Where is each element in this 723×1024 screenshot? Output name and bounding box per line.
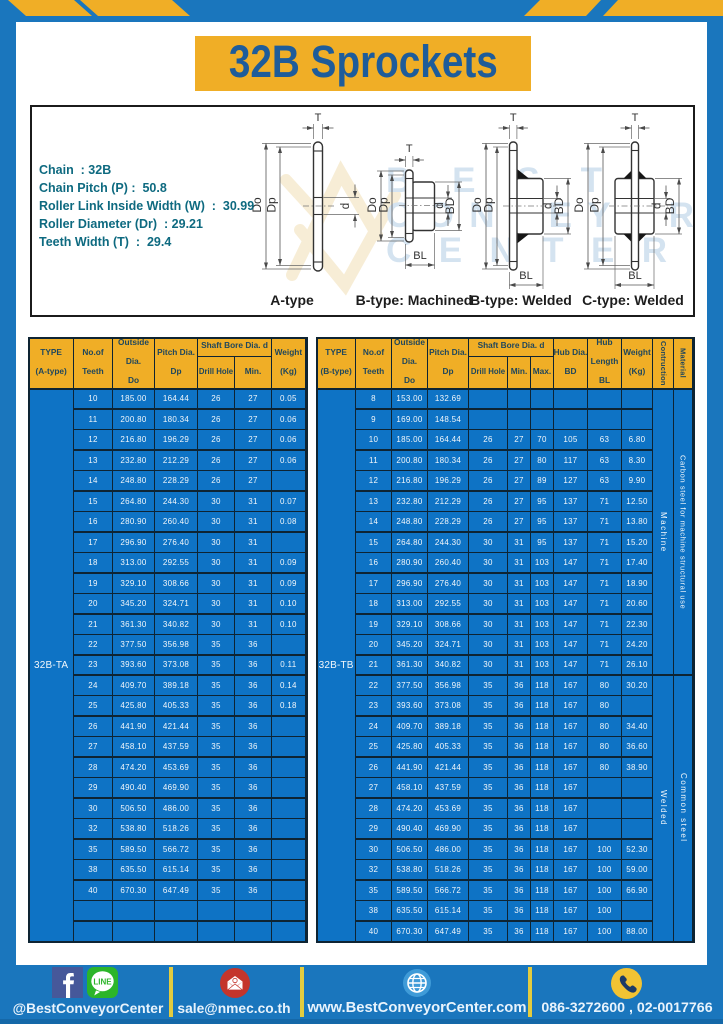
svg-text:BD: BD xyxy=(552,197,566,214)
svg-text:T: T xyxy=(632,112,639,124)
svg-text:BL: BL xyxy=(519,270,532,282)
svg-text:C-type: Welded: C-type: Welded xyxy=(582,292,684,308)
svg-text:Dp: Dp xyxy=(377,197,391,213)
svg-text:A-type: A-type xyxy=(270,292,314,308)
svg-text:d: d xyxy=(652,203,664,209)
svg-text:B-type: Welded: B-type: Welded xyxy=(470,292,572,308)
svg-text:T: T xyxy=(315,112,322,124)
svg-text:BD: BD xyxy=(443,197,457,214)
svg-text:T: T xyxy=(406,143,413,155)
svg-text:CENTER: CENTER xyxy=(386,231,667,270)
svg-text:Dp: Dp xyxy=(482,197,496,213)
svg-text:B-type: Machined: B-type: Machined xyxy=(356,292,473,308)
svg-text:BL: BL xyxy=(413,250,426,262)
svg-text:d: d xyxy=(340,203,352,209)
svg-text:BL: BL xyxy=(628,270,641,282)
svg-text:LINE: LINE xyxy=(93,978,112,987)
svg-text:Do: Do xyxy=(572,197,586,213)
svg-text:BD: BD xyxy=(663,197,677,214)
svg-text:Dp: Dp xyxy=(588,197,602,213)
svg-text:T: T xyxy=(510,112,517,124)
